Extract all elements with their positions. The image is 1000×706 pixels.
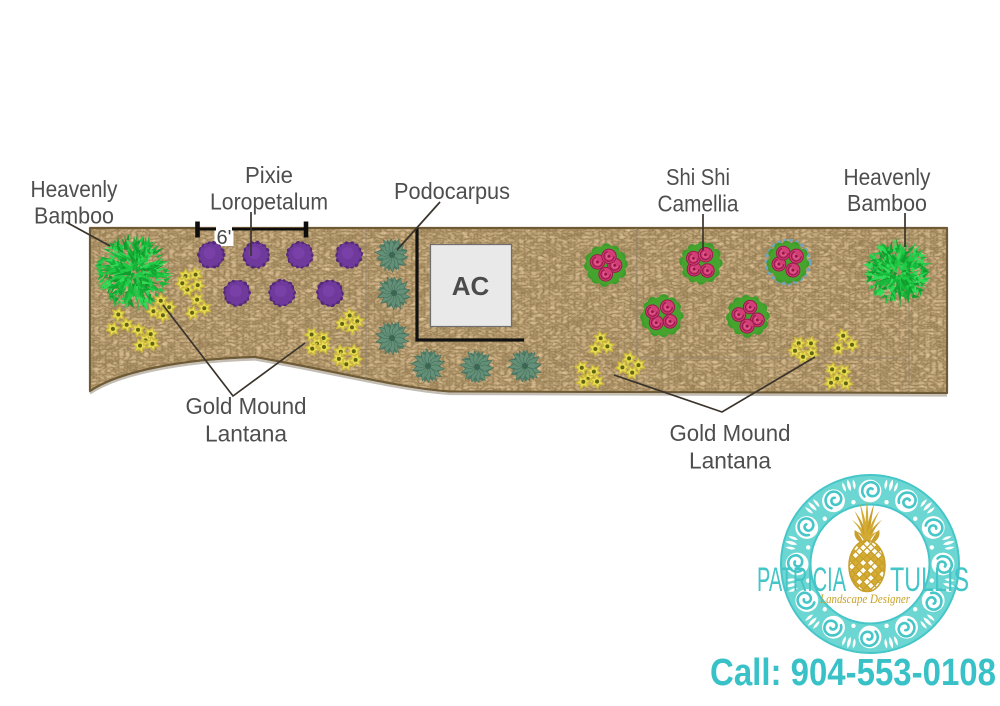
svg-text:AC: AC: [452, 271, 490, 301]
svg-text:Lantana: Lantana: [205, 421, 287, 447]
svg-text:Call: 904-553-0108: Call: 904-553-0108: [710, 652, 996, 694]
svg-text:Pixie: Pixie: [245, 162, 293, 188]
svg-text:Landscape Designer: Landscape Designer: [819, 592, 910, 606]
svg-text:Podocarpus: Podocarpus: [394, 178, 510, 204]
svg-text:Bamboo: Bamboo: [847, 190, 927, 216]
svg-text:Heavenly: Heavenly: [844, 164, 931, 190]
svg-text:Gold Mound: Gold Mound: [186, 393, 307, 419]
svg-text:Gold Mound: Gold Mound: [670, 420, 791, 446]
svg-text:Camellia: Camellia: [658, 191, 739, 217]
svg-text:Heavenly: Heavenly: [31, 176, 118, 202]
svg-text:Loropetalum: Loropetalum: [210, 189, 328, 215]
svg-text:Lantana: Lantana: [689, 448, 771, 474]
svg-text:Bamboo: Bamboo: [34, 203, 114, 229]
svg-text:Shi Shi: Shi Shi: [666, 164, 730, 190]
